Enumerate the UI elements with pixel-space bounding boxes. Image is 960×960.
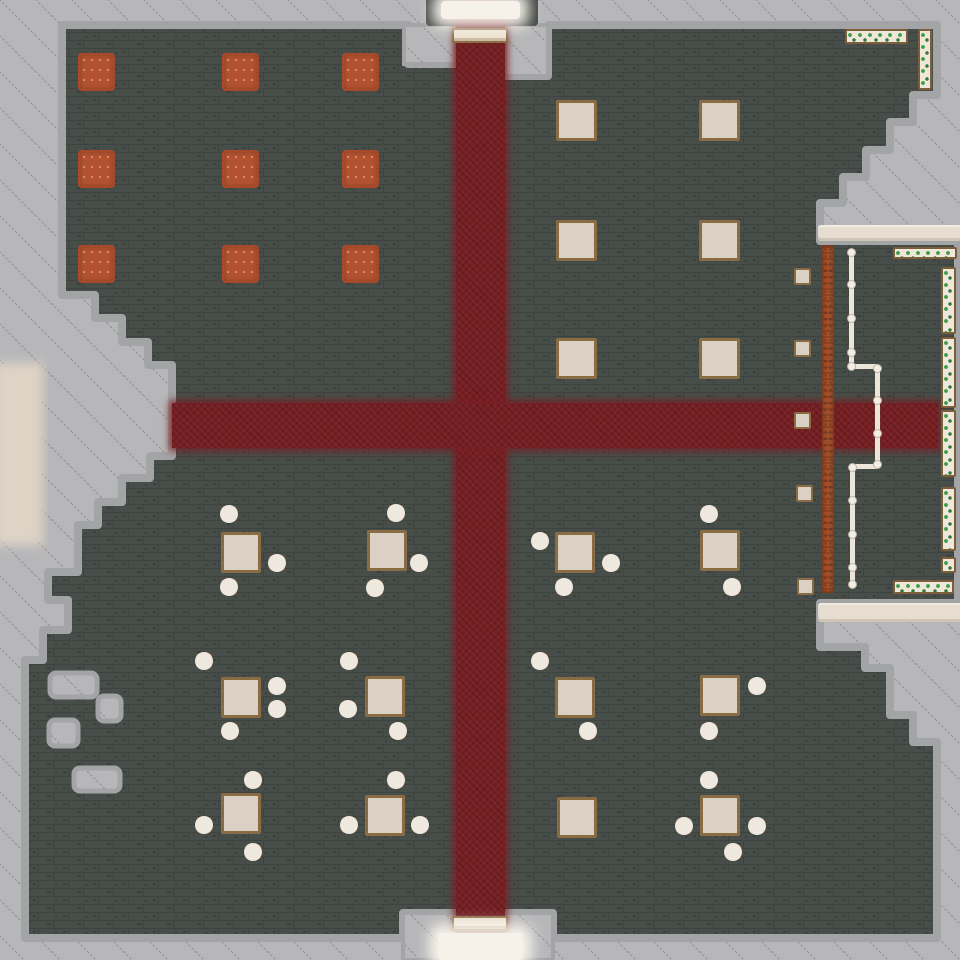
dining-table[interactable] <box>221 793 261 834</box>
corridor-wall-top <box>818 225 960 241</box>
vine-planter[interactable] <box>941 487 956 551</box>
door-top[interactable] <box>441 1 520 19</box>
stool[interactable] <box>388 772 404 788</box>
stool[interactable] <box>603 555 619 571</box>
stool[interactable] <box>196 653 212 669</box>
vine-planter[interactable] <box>941 267 956 334</box>
stool[interactable] <box>196 817 212 833</box>
vine-planter[interactable] <box>845 29 908 44</box>
fence-post <box>847 314 856 323</box>
floor-rug <box>78 53 115 91</box>
fence-post <box>847 362 856 371</box>
fence-post <box>873 429 882 438</box>
fence-post <box>847 280 856 289</box>
corridor-wall-bottom <box>818 603 960 622</box>
mini-table[interactable] <box>794 412 811 429</box>
stool[interactable] <box>749 818 765 834</box>
doormat-top <box>452 28 508 43</box>
stool[interactable] <box>388 505 404 521</box>
stool[interactable] <box>340 701 356 717</box>
stool[interactable] <box>221 579 237 595</box>
stool[interactable] <box>532 653 548 669</box>
dining-table[interactable] <box>221 532 261 573</box>
fence-post <box>848 580 857 589</box>
mini-table[interactable] <box>794 268 811 285</box>
carpet-vertical <box>456 0 505 960</box>
stool[interactable] <box>412 817 428 833</box>
door-bottom[interactable] <box>438 933 523 960</box>
dining-table[interactable] <box>365 676 405 717</box>
dining-table[interactable] <box>700 795 740 836</box>
stool[interactable] <box>341 817 357 833</box>
vine-planter[interactable] <box>941 410 956 477</box>
dining-table[interactable] <box>555 677 595 718</box>
stool[interactable] <box>222 723 238 739</box>
stool[interactable] <box>269 555 285 571</box>
dining-table[interactable] <box>365 795 405 836</box>
vine-planter[interactable] <box>941 337 956 408</box>
fence-post <box>873 364 882 373</box>
bar-counter[interactable] <box>822 245 834 593</box>
floor-rug <box>222 53 259 91</box>
vine-planter[interactable] <box>893 580 954 594</box>
dining-table[interactable] <box>700 675 740 716</box>
floor-rug <box>342 245 379 283</box>
floor-rug <box>222 150 259 188</box>
doormat-bottom <box>452 916 508 931</box>
stool[interactable] <box>245 772 261 788</box>
vine-planter[interactable] <box>918 29 932 90</box>
vine-planter[interactable] <box>893 247 957 259</box>
floor-rug <box>342 150 379 188</box>
fence-rail[interactable] <box>875 366 880 466</box>
left-room-glow <box>0 363 43 545</box>
table[interactable] <box>699 220 740 261</box>
stool[interactable] <box>341 653 357 669</box>
stool[interactable] <box>580 723 596 739</box>
stool[interactable] <box>701 723 717 739</box>
mini-table[interactable] <box>796 485 813 502</box>
stool[interactable] <box>411 555 427 571</box>
stool[interactable] <box>749 678 765 694</box>
floor-rug <box>222 245 259 283</box>
stool[interactable] <box>676 818 692 834</box>
table[interactable] <box>556 338 597 379</box>
table[interactable] <box>556 220 597 261</box>
fence-post <box>847 348 856 357</box>
mini-table[interactable] <box>794 340 811 357</box>
table[interactable] <box>556 100 597 141</box>
mini-table[interactable] <box>797 578 814 595</box>
stool[interactable] <box>725 844 741 860</box>
floor-rug <box>78 150 115 188</box>
table[interactable] <box>699 100 740 141</box>
fence-post <box>847 248 856 257</box>
stool[interactable] <box>245 844 261 860</box>
stool[interactable] <box>390 723 406 739</box>
stool[interactable] <box>269 678 285 694</box>
floor-rug <box>78 245 115 283</box>
stool[interactable] <box>724 579 740 595</box>
stool[interactable] <box>556 579 572 595</box>
fence-post <box>848 530 857 539</box>
floor-rug <box>342 53 379 91</box>
table[interactable] <box>699 338 740 379</box>
fence-post <box>848 496 857 505</box>
vine-planter[interactable] <box>941 557 956 573</box>
stool[interactable] <box>221 506 237 522</box>
stool[interactable] <box>269 701 285 717</box>
dining-table[interactable] <box>221 677 261 718</box>
dining-table[interactable] <box>700 530 740 571</box>
stool[interactable] <box>367 580 383 596</box>
dining-table[interactable] <box>555 532 595 573</box>
stool[interactable] <box>701 506 717 522</box>
tavern-map <box>0 0 960 960</box>
fence-post <box>873 396 882 405</box>
stool[interactable] <box>701 772 717 788</box>
dining-table[interactable] <box>367 530 407 571</box>
fence-post <box>873 460 882 469</box>
fence-post <box>848 463 857 472</box>
fence-post <box>848 563 857 572</box>
dining-table[interactable] <box>557 797 597 838</box>
stool[interactable] <box>532 533 548 549</box>
